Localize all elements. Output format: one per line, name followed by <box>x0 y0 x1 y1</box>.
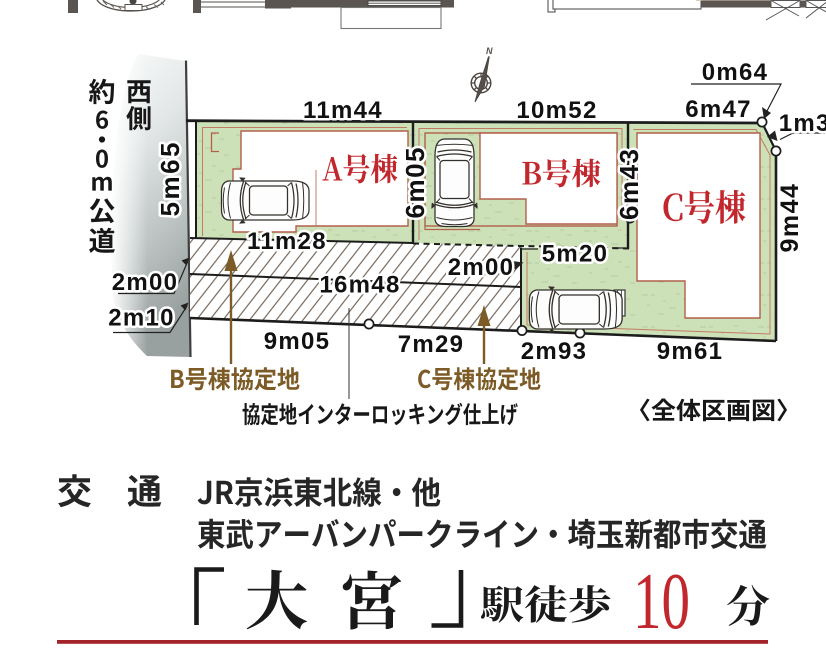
svg-text:9m05: 9m05 <box>264 328 331 355</box>
svg-text:7m29: 7m29 <box>398 331 465 358</box>
svg-text:6m47: 6m47 <box>685 96 752 123</box>
svg-text:9m44: 9m44 <box>776 183 804 253</box>
svg-text:0m64: 0m64 <box>702 59 769 86</box>
svg-text:10m52: 10m52 <box>516 97 597 124</box>
svg-text:11m44: 11m44 <box>303 97 383 124</box>
svg-text:9m61: 9m61 <box>657 338 724 365</box>
svg-text:2m00: 2m00 <box>112 269 179 296</box>
svg-text:2m10: 2m10 <box>108 305 175 332</box>
svg-text:N: N <box>486 46 493 56</box>
svg-text:6m43: 6m43 <box>614 148 644 221</box>
svg-text:2m93: 2m93 <box>521 338 588 365</box>
svg-text:5m20: 5m20 <box>542 241 609 268</box>
svg-text:10: 10 <box>633 556 690 646</box>
svg-text:16m48: 16m48 <box>319 272 400 299</box>
svg-text:5m65: 5m65 <box>155 140 185 217</box>
svg-text:6m05: 6m05 <box>400 146 430 219</box>
svg-text:11m28: 11m28 <box>247 228 327 255</box>
svg-text:1m35: 1m35 <box>779 110 826 137</box>
svg-text:2m00: 2m00 <box>448 254 515 281</box>
